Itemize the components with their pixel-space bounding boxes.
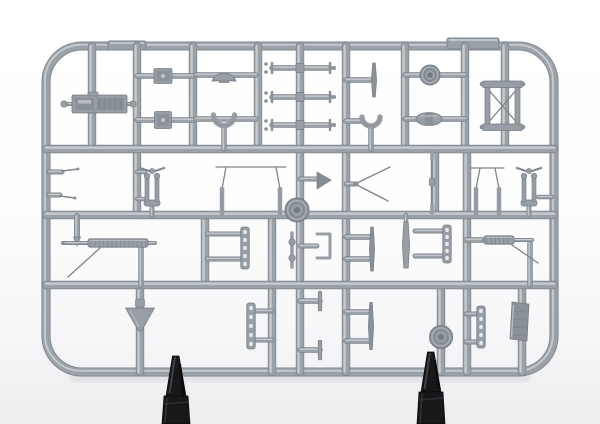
part-radiator <box>510 302 529 341</box>
part-pins <box>216 167 286 214</box>
part-bulge <box>289 233 295 267</box>
part-ladder <box>477 306 485 348</box>
part-ladder <box>443 225 451 263</box>
part-cup <box>362 117 380 126</box>
part-wheel <box>285 198 309 222</box>
part-blade <box>371 63 376 97</box>
part-axle <box>264 119 336 131</box>
part-ttab <box>318 340 322 360</box>
part-engine <box>61 92 136 113</box>
clip-left <box>162 356 190 424</box>
part-ladder <box>241 227 249 269</box>
part-flag <box>317 172 331 189</box>
part-funnel <box>126 299 155 331</box>
part-square <box>155 112 172 129</box>
part-blade <box>368 303 373 350</box>
photo-background <box>0 0 600 424</box>
part-axle <box>264 91 336 103</box>
part-barrel <box>416 113 442 126</box>
part-blade <box>369 227 374 271</box>
part-axle <box>264 62 336 74</box>
part-wheel <box>430 326 453 349</box>
part-ladder <box>247 303 255 349</box>
part-ttab <box>318 291 322 311</box>
part-hat <box>516 167 543 174</box>
part-strut <box>402 222 409 268</box>
part-square <box>154 69 172 84</box>
part-pins <box>471 168 504 214</box>
part-wheel <box>420 65 440 85</box>
sprue-photo <box>0 0 600 424</box>
part-fork <box>144 173 160 206</box>
part-fork <box>521 173 537 206</box>
